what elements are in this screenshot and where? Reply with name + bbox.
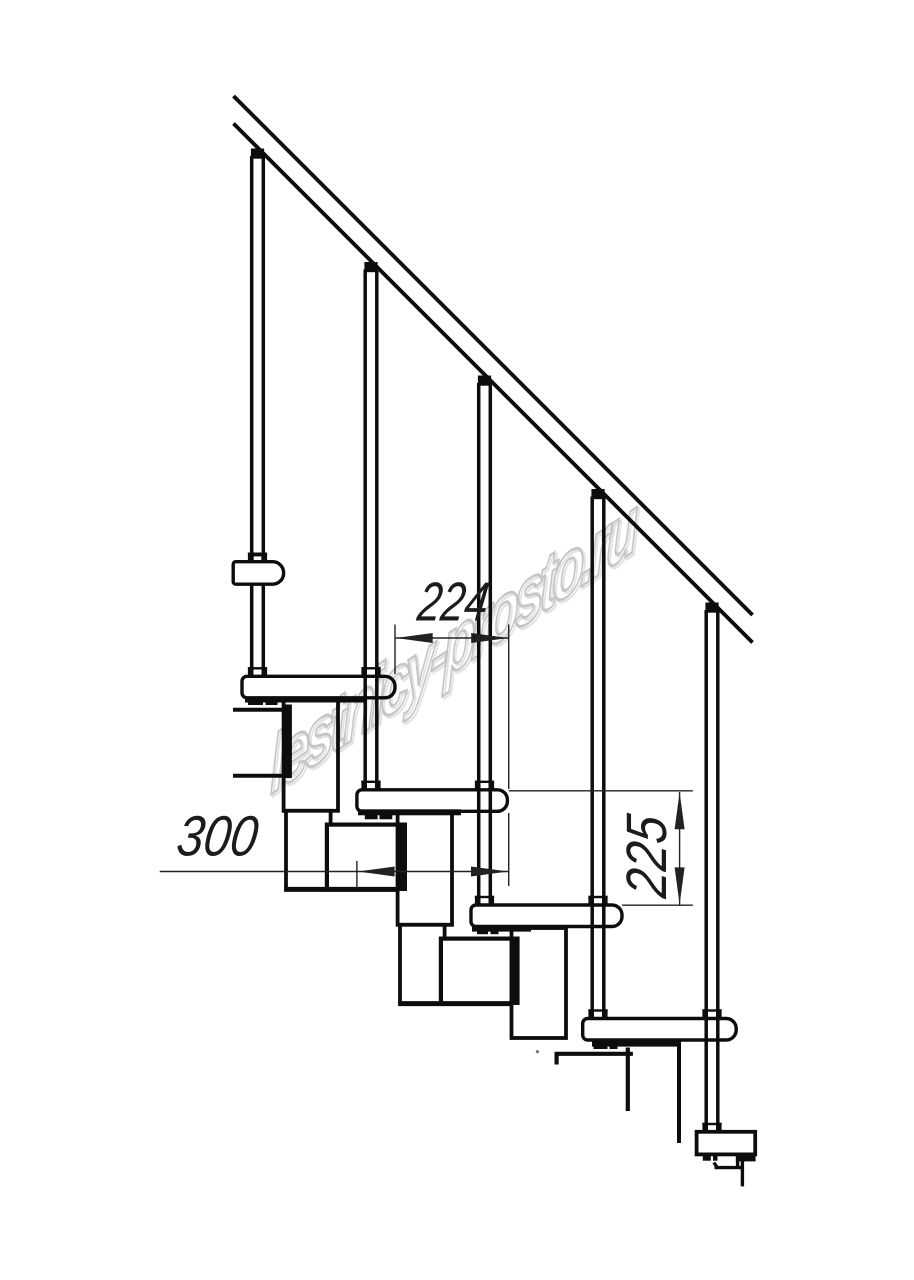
svg-text:300: 300 [173, 805, 262, 869]
svg-text:225: 225 [616, 811, 679, 902]
